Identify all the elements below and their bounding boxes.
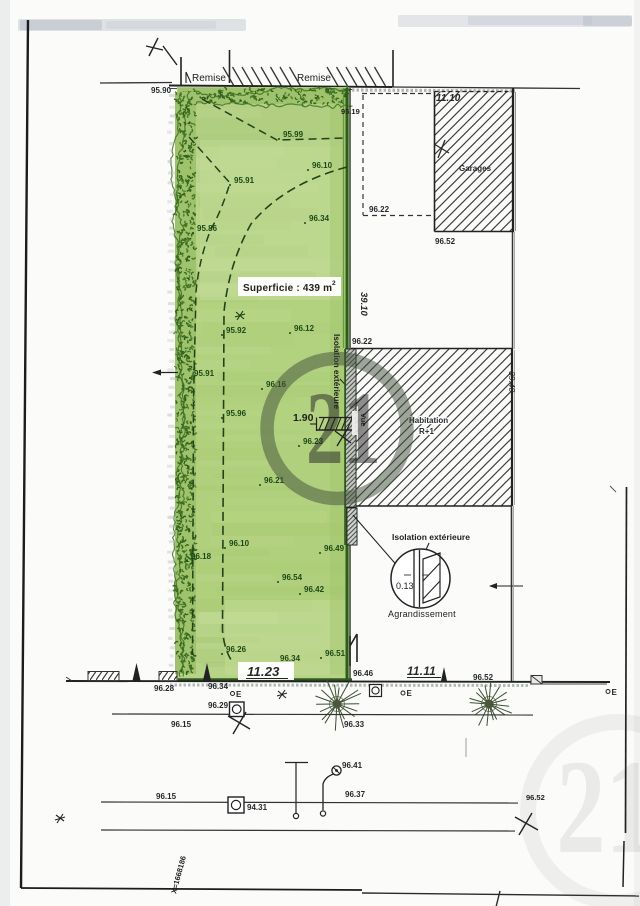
svg-text:96.33: 96.33 xyxy=(344,720,365,729)
svg-text:11.10: 11.10 xyxy=(436,93,461,104)
svg-text:39.10: 39.10 xyxy=(358,292,369,316)
svg-text:2: 2 xyxy=(332,280,336,287)
svg-text:96.37: 96.37 xyxy=(345,790,366,799)
svg-text:96.12: 96.12 xyxy=(294,324,315,333)
svg-text:96.34: 96.34 xyxy=(309,214,330,223)
svg-text:96.22: 96.22 xyxy=(369,205,390,214)
svg-text:96.18: 96.18 xyxy=(191,552,212,561)
svg-text:96.49: 96.49 xyxy=(324,544,345,553)
svg-text:95.86: 95.86 xyxy=(197,224,218,233)
svg-text:95.90: 95.90 xyxy=(151,86,172,95)
svg-text:95.19: 95.19 xyxy=(341,107,360,116)
svg-text:96.34: 96.34 xyxy=(208,682,229,691)
svg-text:Garages: Garages xyxy=(459,164,492,173)
svg-text:96.54: 96.54 xyxy=(282,573,303,582)
svg-text:11.11: 11.11 xyxy=(407,666,436,678)
svg-text:39.40: 39.40 xyxy=(507,371,517,393)
svg-text:96.51: 96.51 xyxy=(325,649,346,658)
svg-text:11.23: 11.23 xyxy=(247,664,280,679)
svg-text:Superficie : 439 m: Superficie : 439 m xyxy=(243,283,332,294)
svg-text:96.46: 96.46 xyxy=(353,669,374,678)
svg-text:96.52: 96.52 xyxy=(526,793,545,802)
svg-text:96.26: 96.26 xyxy=(226,645,247,654)
svg-text:Remise: Remise xyxy=(297,73,331,84)
svg-text:R+1: R+1 xyxy=(419,427,434,436)
svg-text:96.29: 96.29 xyxy=(208,701,229,710)
svg-text:96.52: 96.52 xyxy=(435,237,456,246)
svg-text:96.22: 96.22 xyxy=(352,337,373,346)
svg-text:96.52: 96.52 xyxy=(473,673,494,682)
svg-text:21: 21 xyxy=(306,370,381,486)
svg-text:95.92: 95.92 xyxy=(226,326,247,335)
svg-text:95.99: 95.99 xyxy=(283,130,304,139)
svg-text:Agrandissement: Agrandissement xyxy=(388,609,456,619)
svg-text:95.91: 95.91 xyxy=(194,369,215,378)
svg-text:96.10: 96.10 xyxy=(229,539,250,548)
svg-text:95.91: 95.91 xyxy=(234,176,255,185)
svg-text:Isolation extérieure: Isolation extérieure xyxy=(392,532,470,542)
svg-text:96.42: 96.42 xyxy=(304,585,325,594)
svg-text:95.96: 95.96 xyxy=(226,409,247,418)
svg-text:21: 21 xyxy=(556,732,640,882)
svg-text:Habitation: Habitation xyxy=(409,416,448,425)
svg-text:96.10: 96.10 xyxy=(312,161,333,170)
svg-text:0.13: 0.13 xyxy=(396,581,414,591)
svg-text:94.31: 94.31 xyxy=(247,803,268,812)
svg-text:E: E xyxy=(236,690,242,699)
svg-text:E: E xyxy=(407,689,413,698)
svg-text:Remise: Remise xyxy=(192,73,226,84)
svg-text:96.15: 96.15 xyxy=(156,792,177,801)
svg-text:96.41: 96.41 xyxy=(342,761,363,770)
svg-text:E: E xyxy=(612,688,618,697)
svg-text:96.15: 96.15 xyxy=(171,720,192,729)
svg-text:96.28: 96.28 xyxy=(154,684,175,693)
svg-text:96.34: 96.34 xyxy=(280,654,301,663)
